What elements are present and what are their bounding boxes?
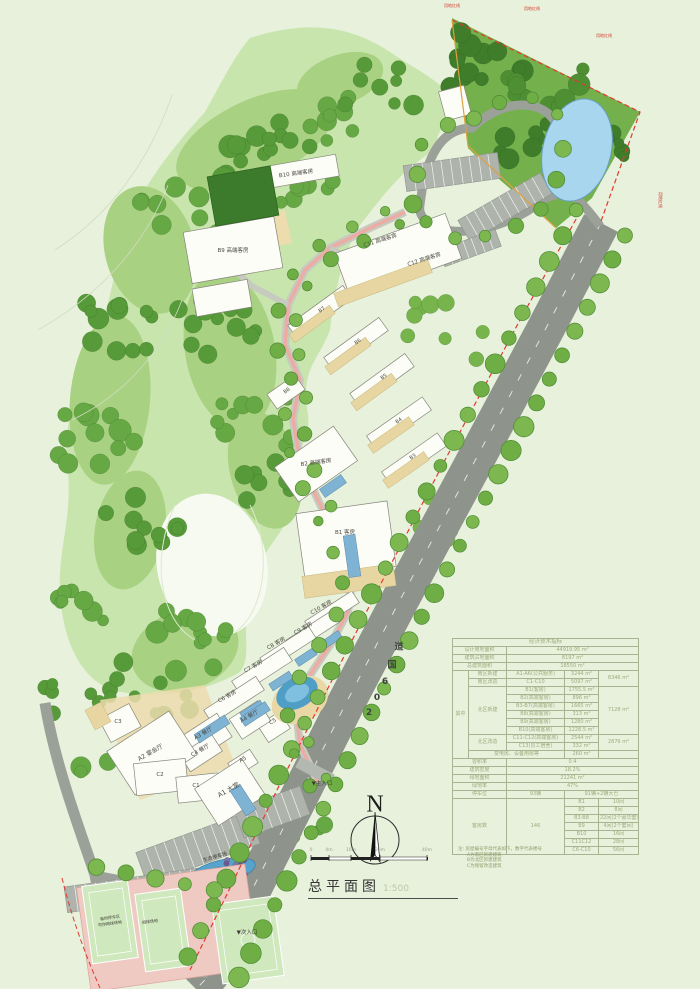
table-cell: B9 [565, 823, 599, 831]
title-scale: 1:500 [383, 884, 409, 894]
table-cell: B9(高端客房) [507, 719, 565, 727]
building-label: B9 高端客房 [217, 246, 248, 254]
table-cell: A1-A6(公共服务) [507, 671, 565, 679]
table-cell: 2544 m² [565, 735, 599, 743]
table-cell: 总建筑面积 [453, 663, 507, 671]
table-cell [599, 751, 639, 759]
table-cell: 0.4 [507, 759, 639, 767]
road-name-char: 道 [394, 640, 403, 653]
title-text: 总平面图 [308, 879, 380, 895]
master-plan-drawing: B10 高端客房B9 高端客房C11 高端客房C12 高端客房B7B6B5B4B… [0, 0, 700, 989]
building-label: C3 [114, 719, 121, 725]
site-label: ▼主入口 [312, 779, 333, 787]
building-label: C2 [156, 772, 163, 778]
table-cell: C11-C12(高端客房) [507, 735, 565, 743]
table-cell: 260 m² [565, 751, 599, 759]
table-cell: 47% [507, 783, 639, 791]
table-cell: 332 m² [565, 743, 599, 751]
table-cell: 1665 m² [565, 703, 599, 711]
table-cell: 1755.5 m² [565, 687, 599, 695]
table-cell: B1(客房) [507, 687, 565, 695]
table-cell: 建筑密度 [453, 767, 507, 775]
table-cell: 容积率 [453, 759, 507, 767]
table-cell: 8346 m² [599, 671, 639, 687]
table-cell: 18550 m² [507, 663, 639, 671]
road-name-char: 0 [374, 693, 380, 703]
table-cell: B3-B8 [565, 815, 599, 823]
road-name-char: 6 [382, 677, 388, 687]
scale-tick-label: 40m [422, 848, 432, 853]
table-cell: 南区改造 [469, 679, 507, 687]
scale-tick-label: 20m [375, 848, 385, 853]
scale-bar [311, 855, 428, 861]
road-name-char: 2 [366, 708, 372, 718]
table-cell: B2(高端客房) [507, 695, 565, 703]
table-cell: B2 [565, 807, 599, 815]
table-cell: 变电房、设备用房等 [469, 751, 565, 759]
table-cell: 28间 [599, 839, 639, 847]
table-cell: 896 m² [565, 695, 599, 703]
table-cell: 5097 m² [565, 679, 599, 687]
note-line: C为保留改造建筑 [467, 864, 542, 870]
table-cell: C13(员工宿舍) [507, 743, 565, 751]
table-cell: 北区新建 [469, 687, 507, 735]
indicators-table: 经济技术指标 设计用地面积44919.95 m² 建筑占地面积8197 m² 总… [452, 638, 639, 855]
table-cell: 3244 m² [565, 671, 599, 679]
table-cell: 北区改造 [469, 735, 507, 751]
boundary-label: 用地红线 [657, 192, 663, 208]
drawing-title: 总平面图1:500 [308, 876, 458, 899]
boundary-label: 用地红线 [524, 6, 540, 12]
note-line: 注: 房屋编号字母代表如下。数字代表楼号 [458, 847, 542, 853]
table-cell: 10间 [599, 799, 639, 807]
table-cell: 南区新建 [469, 671, 507, 679]
table-cell: 绿地面积 [453, 775, 507, 783]
table-cell: B10 [565, 831, 599, 839]
table-cell: C1-C10 [507, 679, 565, 687]
table-cell: 建筑占地面积 [453, 655, 507, 663]
table-cell: B10(高端客房) [507, 727, 565, 735]
table-cell: 313 m² [565, 711, 599, 719]
table-cell: 1228.5 m² [565, 727, 599, 735]
table-cell: 停车位 [453, 791, 507, 799]
boundary-label: 用地红线 [596, 33, 612, 39]
scale-tick-label: 0 [310, 848, 313, 853]
table-notes: 注: 房屋编号字母代表如下。数字代表楼号 A为南区新建建筑 B为北区新建建筑 C… [458, 847, 542, 869]
scale-tick-label: 10m [346, 848, 356, 853]
table-cell: B1 [565, 799, 599, 807]
table-cell: 93辆 [507, 791, 565, 799]
table-cell: C6-C10 [565, 847, 599, 855]
table-cell: 8197 m² [507, 655, 639, 663]
table-cell: 21241 m² [507, 775, 639, 783]
road-name-char: 国 [387, 658, 396, 671]
building-label: C1 [192, 783, 199, 789]
table-cell: 设计用地面积 [453, 647, 507, 655]
table-cell: 7128 m² [599, 687, 639, 735]
table-cell: 44919.95 m² [507, 647, 639, 655]
table-cell: 1280 m² [565, 719, 599, 727]
table-cell: 绿地率 [453, 783, 507, 791]
table-cell: 18.2% [507, 767, 639, 775]
table-cell: B8(高端客房) [507, 711, 565, 719]
north-letter: N [366, 792, 383, 819]
table-cell: 22间(2个豪华套间) [599, 815, 639, 823]
table-cell: 8间 [599, 807, 639, 815]
scale-tick-label: 4m [325, 848, 332, 853]
building-label: B1 客房 [335, 528, 355, 536]
table-cell: 16间 [599, 831, 639, 839]
table-cell: 91辆+2辆大巴 [565, 791, 639, 799]
table-title: 经济技术指标 [453, 639, 639, 647]
north-arrow [351, 812, 399, 864]
table-cell: 2876 m² [599, 735, 639, 751]
table-cell: C11C12 [565, 839, 599, 847]
boundary-label: 用地红线 [444, 3, 460, 9]
site-label: ▼次入口 [237, 928, 258, 936]
table-cell: 其中 [453, 671, 469, 759]
table-cell: B3-B7(高端客房) [507, 703, 565, 711]
table-cell: 56间 [599, 847, 639, 855]
table-cell: 4间(2个套间) [599, 823, 639, 831]
